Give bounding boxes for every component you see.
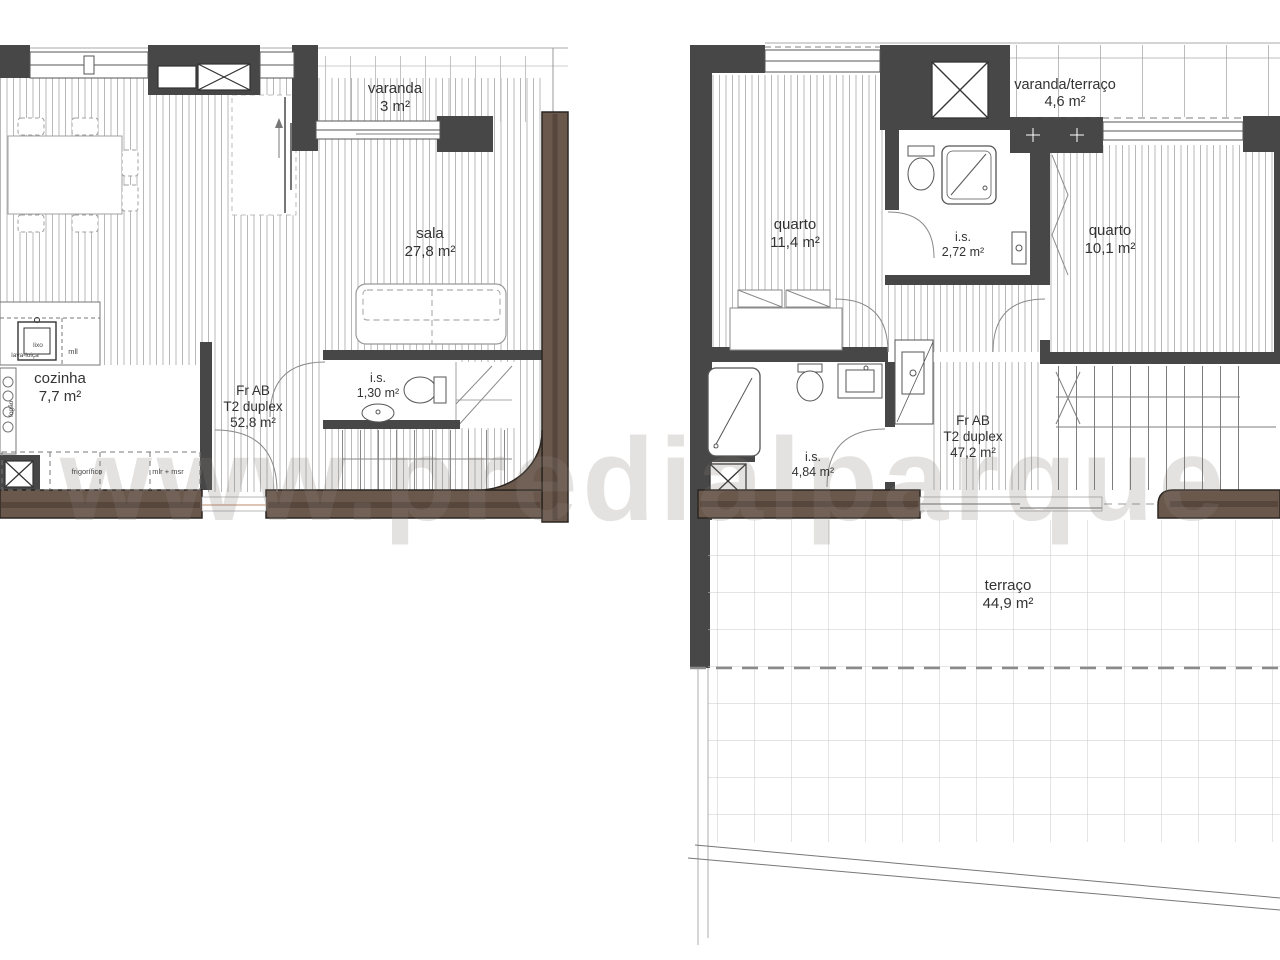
toilet [404,377,446,403]
floor-plan-upper-level [680,0,1280,960]
bed [730,290,842,350]
terrace [688,520,1280,945]
ceiling-projection [232,95,296,215]
entrance-threshold [202,497,266,511]
floor-plan-lower-level [0,0,580,560]
floor-plan-canvas: www.predialparque varanda3 m² sala27,8 m… [0,0,1280,960]
wc-sink [362,404,394,422]
water-heater-closet [895,340,933,424]
bathroom3-fixtures [708,364,882,456]
terrace-sliding-door [920,497,1158,511]
sofa [356,284,506,344]
staircase-upper [1056,366,1276,490]
